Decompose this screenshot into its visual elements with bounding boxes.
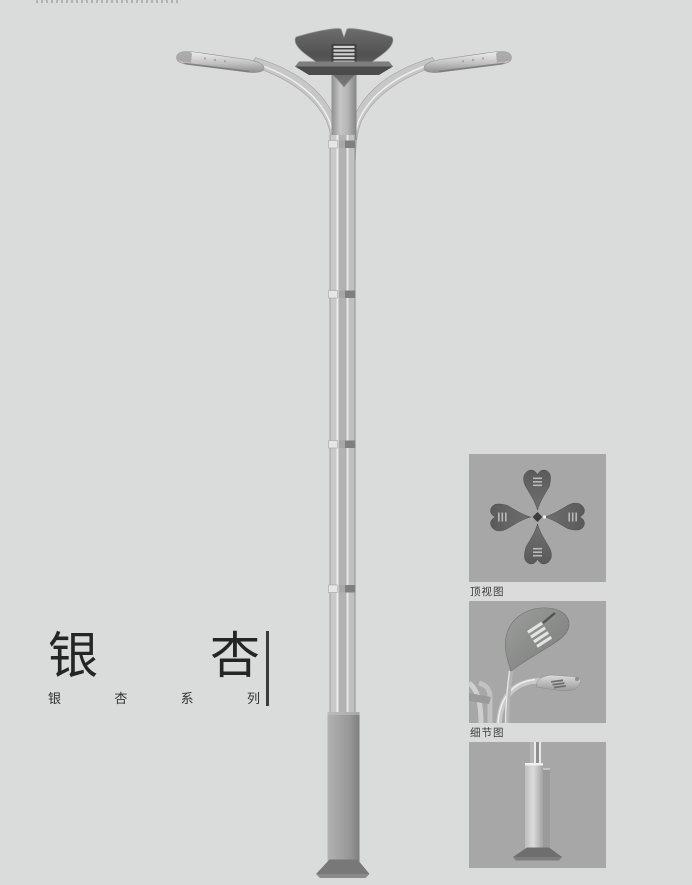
subtitle-char: 系 (181, 691, 194, 706)
subtitle-char: 列 (247, 691, 260, 706)
base-view-pole-top (530, 742, 544, 764)
lamp-head-left (177, 52, 264, 73)
page-title: 银 杏 (48, 628, 260, 684)
pole-joint-2 (329, 291, 356, 299)
crown-collar (295, 62, 393, 76)
base-view-panel (469, 742, 606, 868)
base-plate (316, 860, 370, 875)
lamp-crown-ginkgo-leaf (295, 29, 393, 88)
subtitle-char: 银 (48, 691, 61, 706)
base-view-image (469, 742, 606, 868)
title-char: 银 (48, 628, 98, 684)
title-char: 杏 (210, 628, 260, 684)
top-view-panel (469, 454, 606, 582)
detail-view-panel (469, 601, 606, 723)
detail-views-column: 顶视图 (469, 454, 606, 868)
detail-ginkgo-leaf (505, 608, 569, 671)
base-view-plate (513, 848, 562, 861)
catalog-page: 银 杏 银 杏 系 列 (0, 0, 692, 885)
crown-louver-vent (332, 44, 357, 64)
top-view-hub (533, 512, 547, 522)
lamp-head-right (424, 52, 511, 73)
page-subtitle: 银 杏 系 列 (48, 691, 260, 706)
top-view-image (469, 454, 606, 582)
detail-view-image (469, 601, 606, 723)
ginkgo-leaf-top (524, 470, 551, 510)
detail-small-head (537, 675, 581, 691)
lamp-base (316, 712, 370, 878)
title-divider-line (266, 631, 269, 706)
detail-view-label: 细节图 (470, 725, 606, 742)
base-view-column (525, 763, 550, 850)
title-block: 银 杏 银 杏 系 列 (48, 628, 260, 706)
subtitle-char: 杏 (114, 691, 127, 706)
pole-joint-3 (329, 441, 356, 449)
pole-joint-4 (329, 585, 356, 593)
lamp-pole (329, 135, 356, 712)
top-view-label: 顶视图 (470, 584, 606, 601)
pole-joint-1 (329, 141, 356, 149)
